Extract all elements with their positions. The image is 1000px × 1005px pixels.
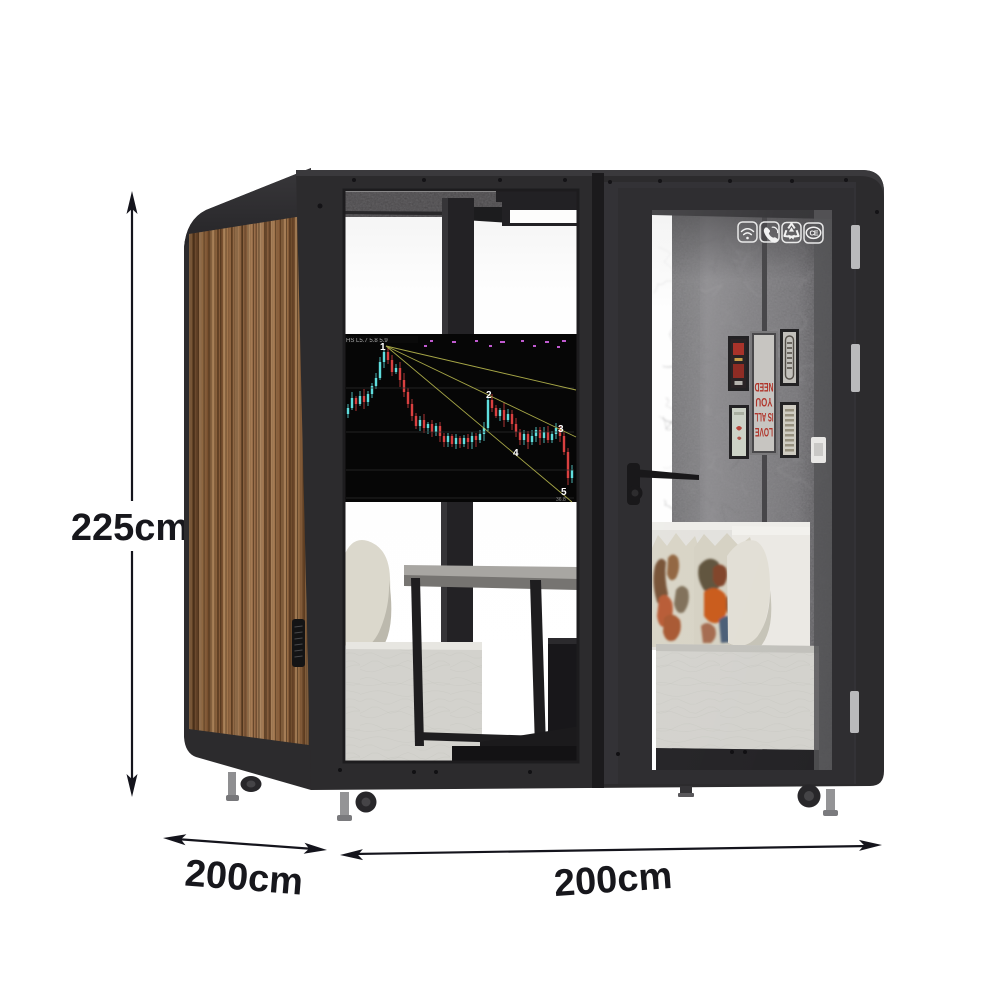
svg-text:200cm: 200cm xyxy=(553,855,674,905)
svg-text:YOU: YOU xyxy=(756,395,773,409)
svg-text:NEED: NEED xyxy=(754,380,773,394)
svg-text:36.8: 36.8 xyxy=(556,497,566,503)
svg-text:4: 4 xyxy=(513,448,519,459)
svg-text:1: 1 xyxy=(380,342,386,353)
svg-text:IS ALL: IS ALL xyxy=(755,410,774,424)
svg-text:225cm: 225cm xyxy=(71,507,189,549)
svg-text:3: 3 xyxy=(558,424,564,435)
svg-text:CE: CE xyxy=(809,230,818,237)
svg-text:2: 2 xyxy=(486,390,492,401)
svg-text:200cm: 200cm xyxy=(183,852,304,903)
svg-text:LOVE: LOVE xyxy=(755,425,773,439)
